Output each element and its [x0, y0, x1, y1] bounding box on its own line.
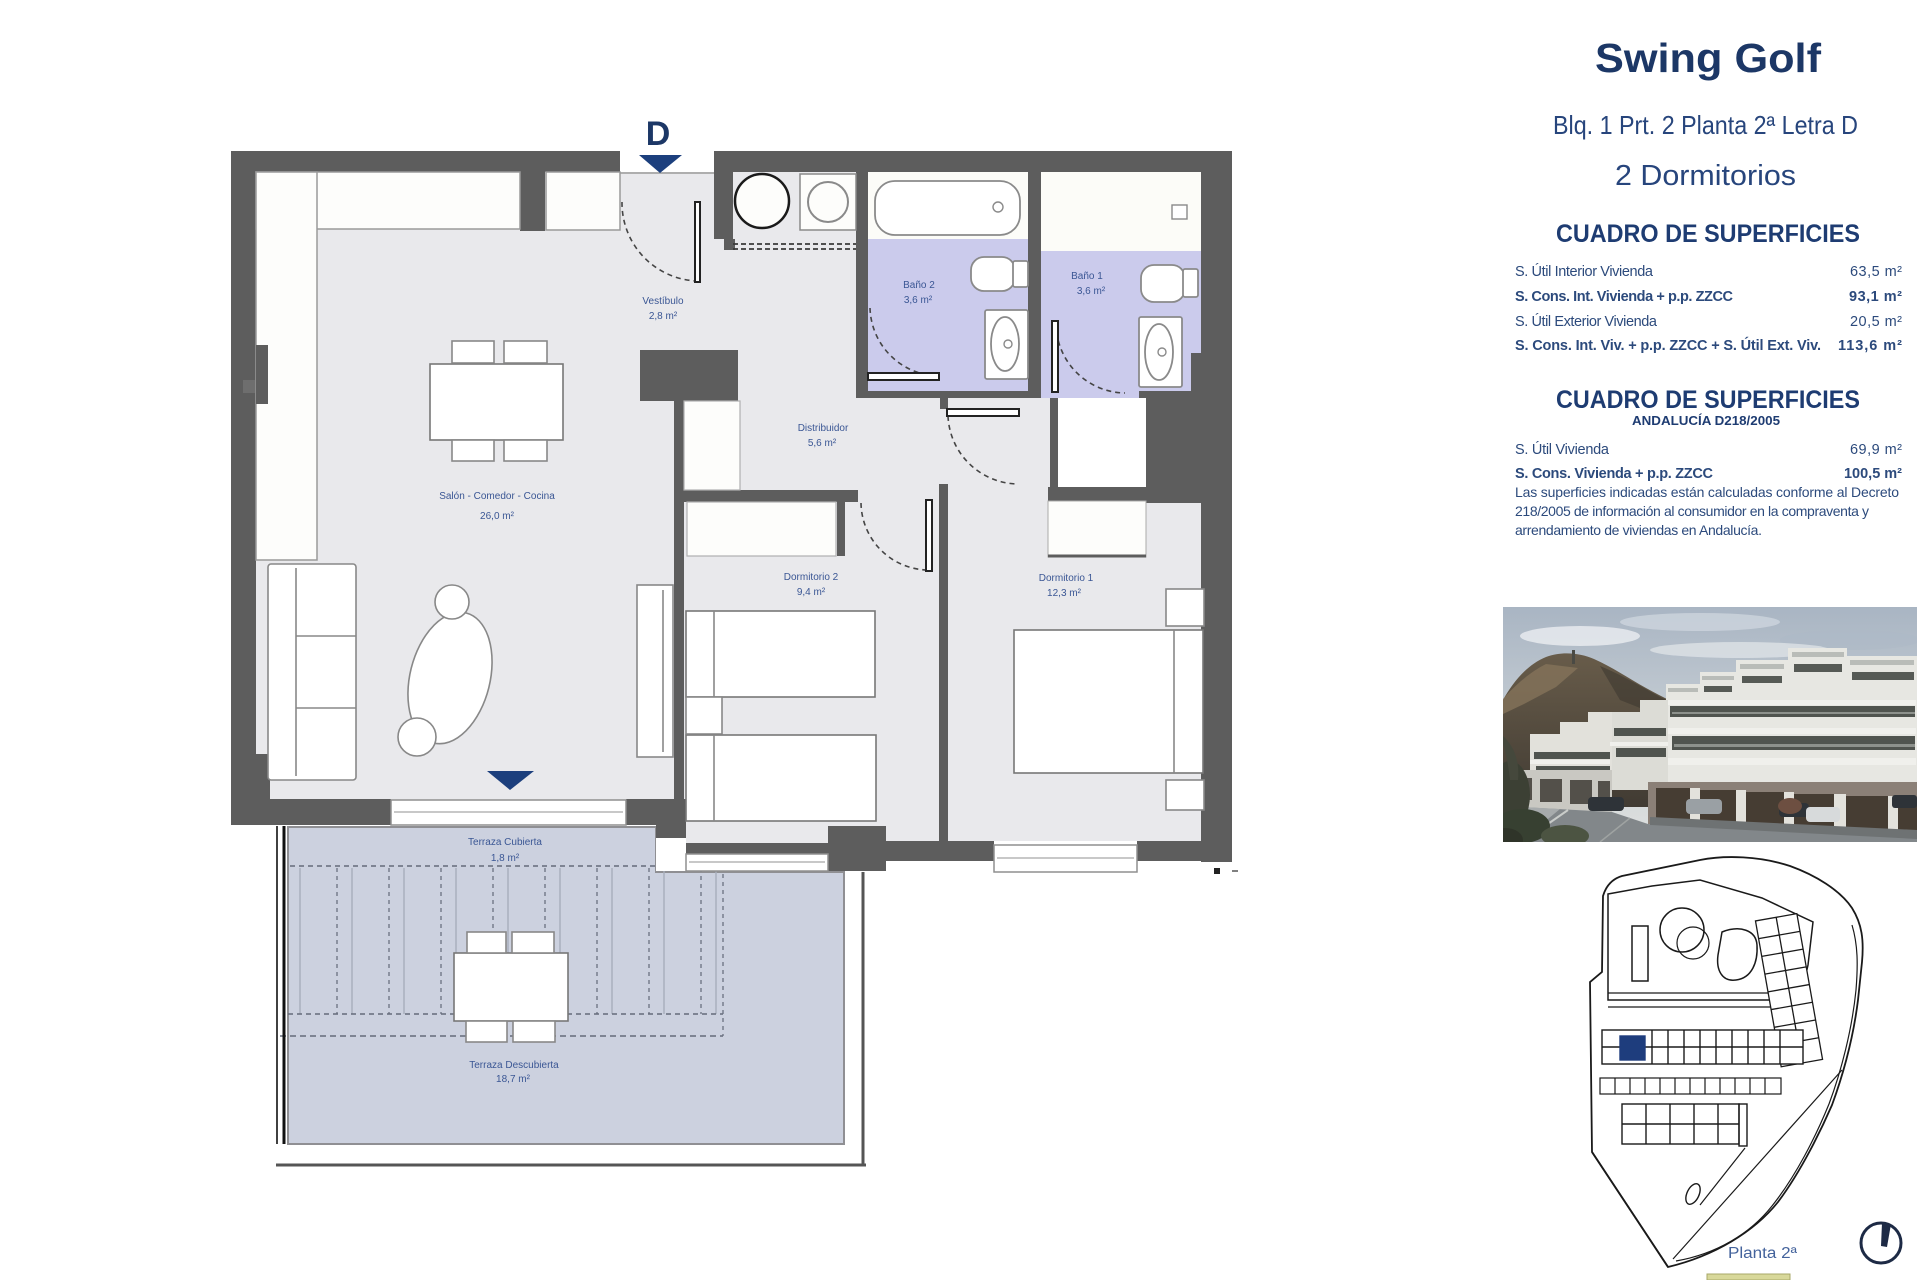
- svg-text:Baño 1: Baño 1: [1071, 271, 1103, 282]
- svg-text:ANDALUCÍA D218/2005: ANDALUCÍA D218/2005: [1632, 413, 1780, 428]
- svg-text:18,7 m²: 18,7 m²: [496, 1074, 531, 1085]
- svg-text:Blq. 1 Prt. 2 Planta 2ª Letra: Blq. 1 Prt. 2 Planta 2ª Letra D: [1553, 110, 1858, 140]
- svg-text:Las superficies indicadas está: Las superficies indicadas están calculad…: [1515, 484, 1899, 500]
- svg-text:218/2005 de información al con: 218/2005 de información al consumidor en…: [1515, 503, 1869, 519]
- svg-text:Vestíbulo: Vestíbulo: [642, 296, 684, 307]
- svg-text:Salón - Comedor - Cocina: Salón - Comedor - Cocina: [439, 491, 555, 502]
- svg-text:2,8 m²: 2,8 m²: [649, 311, 678, 322]
- svg-text:2 Dormitorios: 2 Dormitorios: [1615, 160, 1796, 192]
- svg-text:CUADRO DE SUPERFICIES: CUADRO DE SUPERFICIES: [1556, 220, 1860, 248]
- svg-text:113,6 m²: 113,6 m²: [1838, 338, 1902, 354]
- svg-text:S. Cons. Vivienda + p.p. ZZCC: S. Cons. Vivienda + p.p. ZZCC: [1515, 466, 1714, 482]
- svg-text:Planta 2ª: Planta 2ª: [1728, 1245, 1797, 1262]
- svg-text:D: D: [646, 115, 671, 153]
- svg-text:Swing Golf: Swing Golf: [1595, 35, 1821, 81]
- svg-text:S. Cons. Int. Vivienda + p.p.: S. Cons. Int. Vivienda + p.p. ZZCC: [1515, 289, 1734, 305]
- svg-text:Baño 2: Baño 2: [903, 280, 935, 291]
- svg-text:26,0 m²: 26,0 m²: [480, 511, 515, 522]
- svg-text:Dormitorio 1: Dormitorio 1: [1039, 573, 1094, 584]
- svg-text:69,9 m²: 69,9 m²: [1850, 442, 1902, 458]
- svg-text:Terraza Cubierta: Terraza Cubierta: [468, 837, 542, 848]
- svg-text:S. Útil Exterior Vivienda: S. Útil Exterior Vivienda: [1515, 313, 1658, 330]
- svg-text:1,8 m²: 1,8 m²: [491, 853, 520, 864]
- svg-text:12,3 m²: 12,3 m²: [1047, 588, 1082, 599]
- svg-text:Terraza Descubierta: Terraza Descubierta: [469, 1060, 559, 1071]
- svg-text:S. Útil Vivienda: S. Útil Vivienda: [1515, 441, 1610, 458]
- svg-text:93,1 m²: 93,1 m²: [1849, 289, 1902, 305]
- svg-text:9,4 m²: 9,4 m²: [797, 587, 826, 598]
- svg-text:Dormitorio 2: Dormitorio 2: [784, 572, 839, 583]
- svg-text:Distribuidor: Distribuidor: [798, 423, 849, 434]
- svg-text:20,5 m²: 20,5 m²: [1850, 314, 1902, 330]
- svg-text:3,6 m²: 3,6 m²: [1077, 286, 1106, 297]
- svg-text:S. Cons. Int. Viv. + p.p. ZZCC: S. Cons. Int. Viv. + p.p. ZZCC + S. Útil…: [1515, 336, 1821, 354]
- svg-text:5,6 m²: 5,6 m²: [808, 438, 837, 449]
- svg-text:63,5 m²: 63,5 m²: [1850, 264, 1902, 280]
- svg-text:arrendamiento de viviendas en: arrendamiento de viviendas en Andalucía.: [1515, 522, 1762, 538]
- svg-text:CUADRO DE SUPERFICIES: CUADRO DE SUPERFICIES: [1556, 386, 1860, 414]
- svg-text:S. Útil Interior Vivienda: S. Útil Interior Vivienda: [1515, 263, 1654, 280]
- svg-text:100,5 m²: 100,5 m²: [1844, 466, 1902, 482]
- svg-text:3,6 m²: 3,6 m²: [904, 295, 933, 306]
